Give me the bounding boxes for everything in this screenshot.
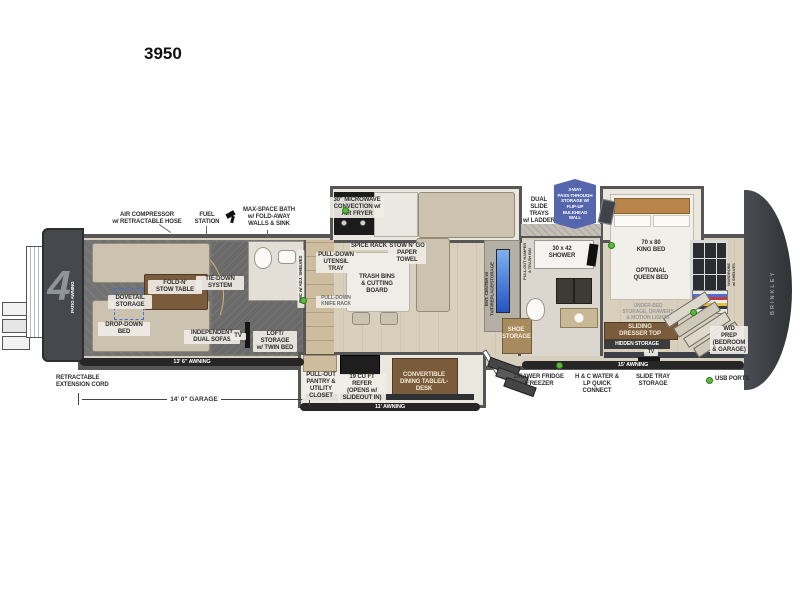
garage-tv-label: TV xyxy=(230,333,246,340)
ent-center-label: ENT. CENTER w/ TV/FIREPLACE/STORAGE xyxy=(484,252,495,326)
wardrobe-label: WARDROBE w/ SHELVES xyxy=(727,244,737,306)
microwave-label: 30" MICROWAVE CONVECTION w/ AIR FRYER xyxy=(330,197,384,218)
dining-table-label: CONVERTIBLE DINING TABLE/L-DESK xyxy=(394,372,454,393)
sectional-sofa-top xyxy=(418,192,515,238)
under-bed-label: UNDER-BED STORAGE, DRAWERS & MOTION LIGH… xyxy=(608,304,688,321)
island-chair-2 xyxy=(380,312,398,325)
stow-n-go-label: STOW N' GO PAPER TOWEL xyxy=(388,243,426,264)
bed-pillow-2 xyxy=(653,215,690,227)
fireplace xyxy=(496,249,510,313)
door-side-awning-label: 11' AWNING xyxy=(375,404,405,410)
tie-down-label: TIE-DOWN SYSTEM xyxy=(196,276,244,290)
retractable-cord-label: RETRACTABLE EXTENSION CORD xyxy=(56,375,126,389)
pass-through-badge-label: 3-WAY PASS-THROUGH STORAGE W/ FLIP-UP BU… xyxy=(558,187,593,221)
loft-storage-label: LOFT/ STORAGE w/ TWIN BED xyxy=(253,331,297,352)
bed-blanket xyxy=(614,198,690,214)
dim-tick-left xyxy=(78,393,79,405)
pantry-cabinet xyxy=(303,355,337,372)
brand-name: BRINKLEY xyxy=(770,250,777,336)
dim-line-right xyxy=(221,399,306,400)
front-cap xyxy=(744,190,792,390)
pantry-label: PULL-OUT PANTRY & UTILITY CLOSET xyxy=(302,372,340,400)
pass-through-badge: 3-WAY PASS-THROUGH STORAGE W/ FLIP-UP BU… xyxy=(554,179,596,229)
usb-dot-awning xyxy=(556,362,563,369)
bath-cabinet-door-1 xyxy=(556,278,574,304)
bath-vanity xyxy=(560,308,598,328)
drawer-fridge-label: DRAWER FRIDGE /FREEZER xyxy=(514,374,564,388)
dual-slide-trays-label: DUAL SLIDE TRAYS w/ LADDER xyxy=(520,197,558,225)
hidden-storage-label: HIDDEN STORAGE xyxy=(604,342,670,348)
dim-line-left xyxy=(82,399,167,400)
bedroom-tv-label: TV xyxy=(644,350,658,356)
model-number: 3950 xyxy=(144,44,182,64)
pass-through-trays xyxy=(521,224,601,236)
refer-label: 19 CU FT REFER (OPENS w/ SLIDEOUT IN) xyxy=(338,374,386,402)
refrigerator xyxy=(340,355,380,375)
air-compressor-label: AIR COMPRESSOR w/ RETRACTABLE HOSE xyxy=(104,212,190,226)
garage-awning-label: 13' 6" AWNING xyxy=(173,359,210,365)
door-side-awning-bar: 11' AWNING xyxy=(300,403,480,411)
toilet-garage-bath xyxy=(254,247,272,269)
usb-dot-stairs xyxy=(690,309,697,316)
garage-awning-bar: 13' 6" AWNING xyxy=(80,358,304,366)
slide-tray-label: SLIDE TRAY STORAGE xyxy=(630,374,676,388)
bedroom-awning-label: 15' AWNING xyxy=(618,362,648,368)
usb-ports-label: USB PORTS xyxy=(715,376,751,383)
drop-down-bed-label: DROP-DOWN BED xyxy=(98,322,150,336)
wall-bath-bedroom xyxy=(600,240,603,356)
dovetail-label: DOVETAIL STORAGE xyxy=(108,295,152,309)
bed-pillow-1 xyxy=(614,215,651,227)
garage-dimension-label: 14' 0" GARAGE xyxy=(170,396,218,403)
sliding-dresser-label: SLIDING DRESSER TOP xyxy=(610,324,670,338)
king-bed-label: 70 x 80 KING BED xyxy=(618,240,684,254)
pointer-max-bath xyxy=(267,230,268,238)
spice-rack-label: SPICE RACK xyxy=(350,243,388,250)
bath-cabinet-door-2 xyxy=(574,278,592,304)
utensil-tray-label: PULL-DOWN UTENSIL TRAY xyxy=(316,252,356,273)
sink-garage-bath xyxy=(278,250,296,264)
knife-rack-label: PULL-DOWN KNIFE RACK xyxy=(316,296,356,308)
usb-dot-bedroom xyxy=(608,242,615,249)
trash-bins-label: TRASH BINS & CUTTING BOARD xyxy=(350,274,404,295)
fuel-station-label: FUEL STATION xyxy=(190,212,224,226)
shoe-storage-label: SHOE STORAGE xyxy=(502,327,530,341)
usb-legend-dot xyxy=(706,377,713,384)
hc-water-label: H & C WATER & LP QUICK CONNECT xyxy=(568,374,626,395)
shower-label: 30 x 42 SHOWER xyxy=(540,246,584,260)
floorplan-scene: 3950 4 PATIO AWNING BRINKLEY FOLD-N' STO… xyxy=(0,0,800,600)
fold-n-stow-label: FOLD-N' STOW TABLE xyxy=(148,280,202,294)
usb-dot-kitchen xyxy=(342,207,349,214)
island-chair-1 xyxy=(352,312,370,325)
usb-dot-ohc xyxy=(300,297,307,304)
wd-prep-label: W/D PREP (BEDROOM & GARAGE) xyxy=(710,326,748,354)
max-space-bath-label: MAX-SPACE BATH w/ FOLD-AWAY WALLS & SINK xyxy=(234,207,304,228)
patio-awning-label: PATIO AWNING xyxy=(70,268,75,326)
toilet xyxy=(526,298,545,321)
garage-dimension: 14' 0" GARAGE xyxy=(78,392,310,406)
pointer-fuel-station xyxy=(206,226,207,236)
optional-queen-label: OPTIONAL QUEEN BED xyxy=(618,268,684,282)
hamper-label: PULL-OUT HAMPER & TRASH BIN xyxy=(523,238,533,284)
